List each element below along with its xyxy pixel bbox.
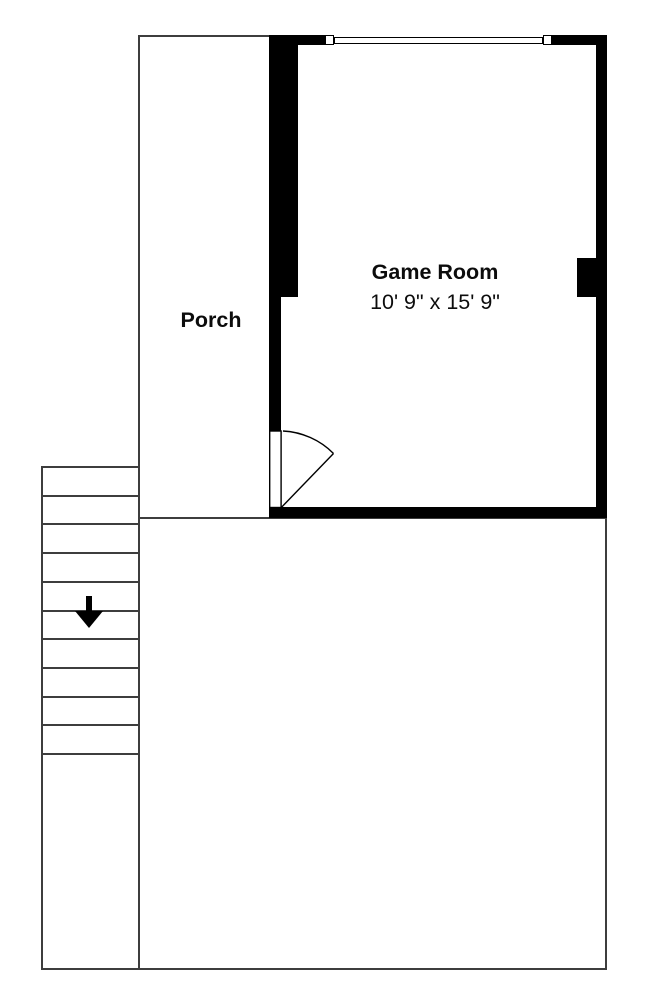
down-arrow-head-icon [75,611,103,628]
game-room-dimensions: 10' 9" x 15' 9" [285,291,585,315]
window-end-cap-left [325,35,334,45]
game-room-left-wall-upper [269,35,298,297]
down-arrow-icon [86,596,92,612]
stair-tread-line [41,638,140,640]
floor-plan: Game Room 10' 9" x 15' 9" Porch [0,0,659,1000]
stair-tread-line [41,753,140,755]
lower-area-right-boundary-line [605,517,607,970]
stair-tread-line [41,696,140,698]
window-icon [334,37,543,44]
stair-tread-line [41,667,140,669]
game-room-top-wall-left [269,35,325,45]
porch-label: Porch [136,309,286,333]
game-room-right-wall [596,35,607,518]
stair-tread-line [41,724,140,726]
stair-tread-line [41,466,140,468]
stair-tread-line [41,581,140,583]
porch-top-boundary-line [138,35,270,37]
stair-tread-line [41,523,140,525]
window-end-cap-right [543,35,552,45]
door-leaf [281,454,333,508]
stair-tread-line [41,495,140,497]
stair-tread-line [41,552,140,554]
door-swing-icon [258,418,368,530]
door-arc [283,431,334,454]
door-frame [270,431,281,508]
lower-area-bottom-boundary-line [41,968,607,970]
game-room-label: Game Room [285,261,585,285]
